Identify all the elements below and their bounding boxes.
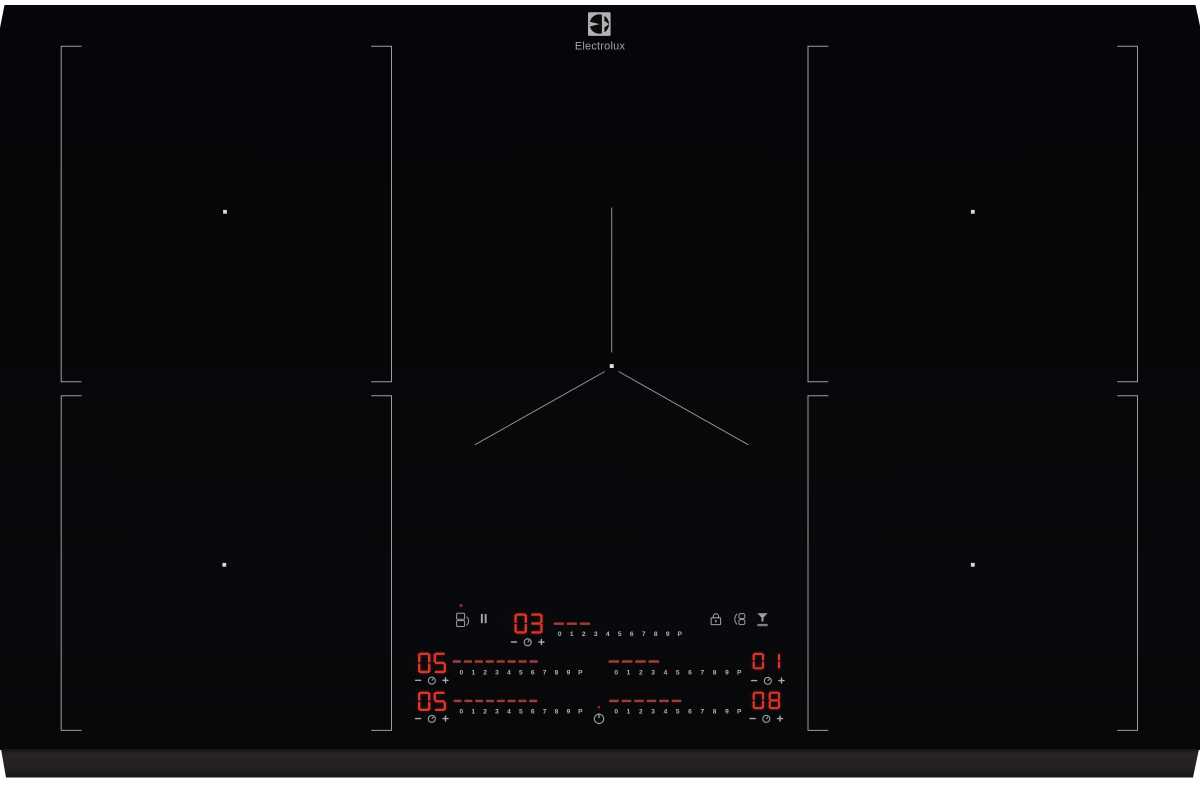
svg-text:Electrolux: Electrolux bbox=[575, 41, 626, 53]
